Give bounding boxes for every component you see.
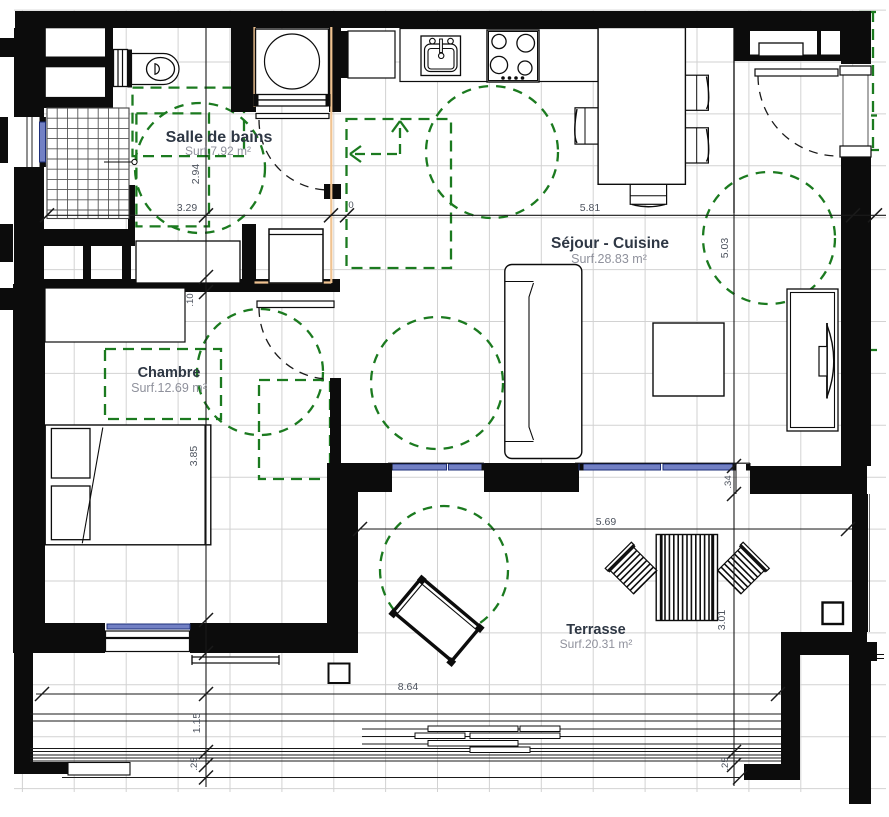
svg-text:.34: .34	[723, 475, 734, 488]
svg-text:3.29: 3.29	[177, 202, 198, 214]
svg-text:5.81: 5.81	[580, 202, 601, 214]
svg-text:1.15: 1.15	[191, 713, 203, 734]
svg-text:Surf.12.69 m²: Surf.12.69 m²	[131, 381, 207, 395]
svg-text:Chambre: Chambre	[138, 365, 201, 381]
svg-text:0: 0	[348, 200, 353, 211]
svg-text:5.03: 5.03	[719, 238, 731, 259]
svg-text:Surf.20.31 m²: Surf.20.31 m²	[560, 637, 633, 651]
svg-text:3.85: 3.85	[188, 446, 200, 467]
svg-text:3.01: 3.01	[716, 610, 728, 631]
svg-text:Surf.28.83 m²: Surf.28.83 m²	[571, 252, 647, 266]
svg-text:2.94: 2.94	[190, 164, 202, 185]
svg-text:Séjour - Cuisine: Séjour - Cuisine	[551, 235, 669, 252]
svg-text:8.64: 8.64	[398, 681, 419, 693]
svg-text:Terrasse: Terrasse	[566, 622, 625, 638]
svg-text:.10: .10	[185, 293, 196, 306]
svg-text:.25: .25	[720, 757, 731, 770]
svg-text:5.69: 5.69	[596, 516, 617, 528]
svg-text:Surf.7.92 m²: Surf.7.92 m²	[185, 144, 251, 158]
svg-text:.25: .25	[189, 757, 200, 770]
